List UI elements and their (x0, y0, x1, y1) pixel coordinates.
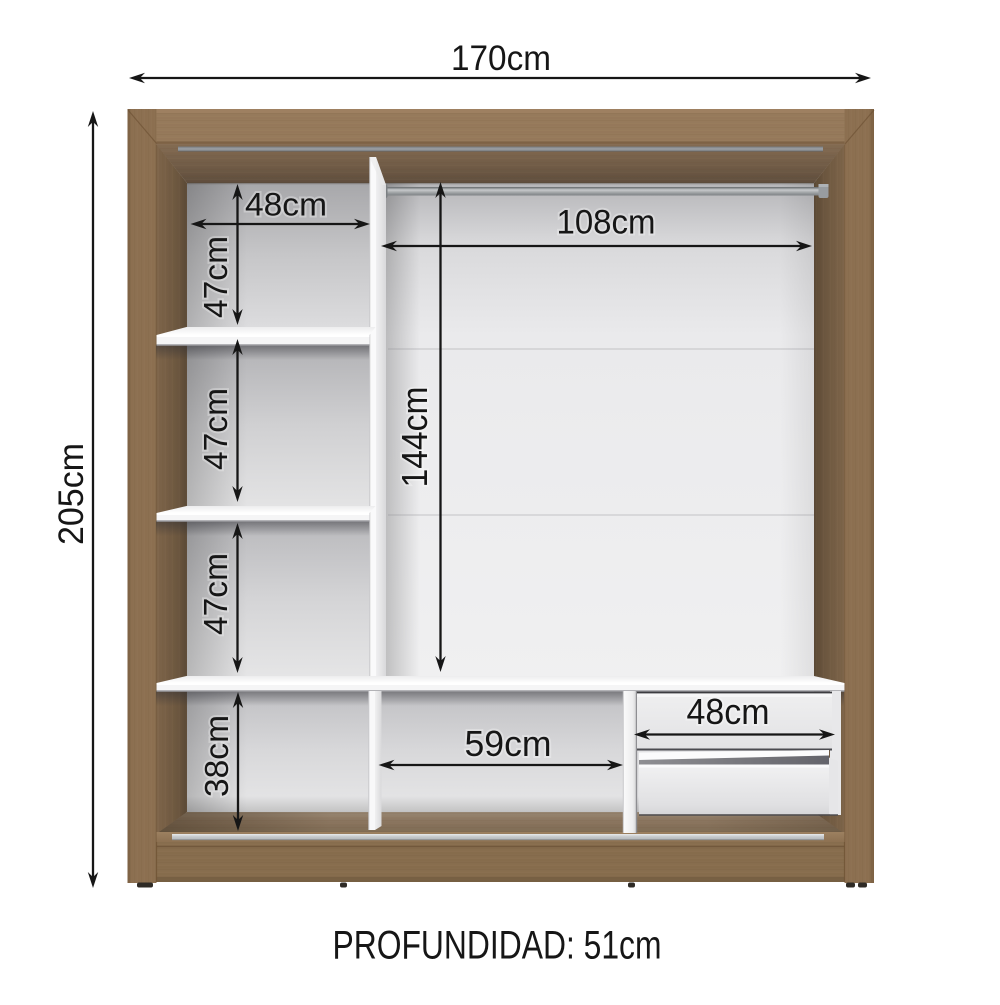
svg-text:47cm: 47cm (197, 388, 234, 470)
svg-text:108cm: 108cm (557, 204, 656, 242)
svg-text:59cm: 59cm (465, 723, 552, 764)
svg-text:38cm: 38cm (198, 715, 235, 797)
svg-text:205cm: 205cm (52, 443, 91, 545)
svg-text:47cm: 47cm (197, 236, 234, 318)
svg-text:144cm: 144cm (394, 387, 435, 488)
svg-text:47cm: 47cm (197, 553, 234, 635)
svg-text:PROFUNDIDAD: 51cm: PROFUNDIDAD: 51cm (333, 924, 662, 968)
svg-text:48cm: 48cm (245, 187, 327, 223)
svg-text:48cm: 48cm (687, 691, 770, 732)
svg-text:170cm: 170cm (451, 39, 551, 78)
